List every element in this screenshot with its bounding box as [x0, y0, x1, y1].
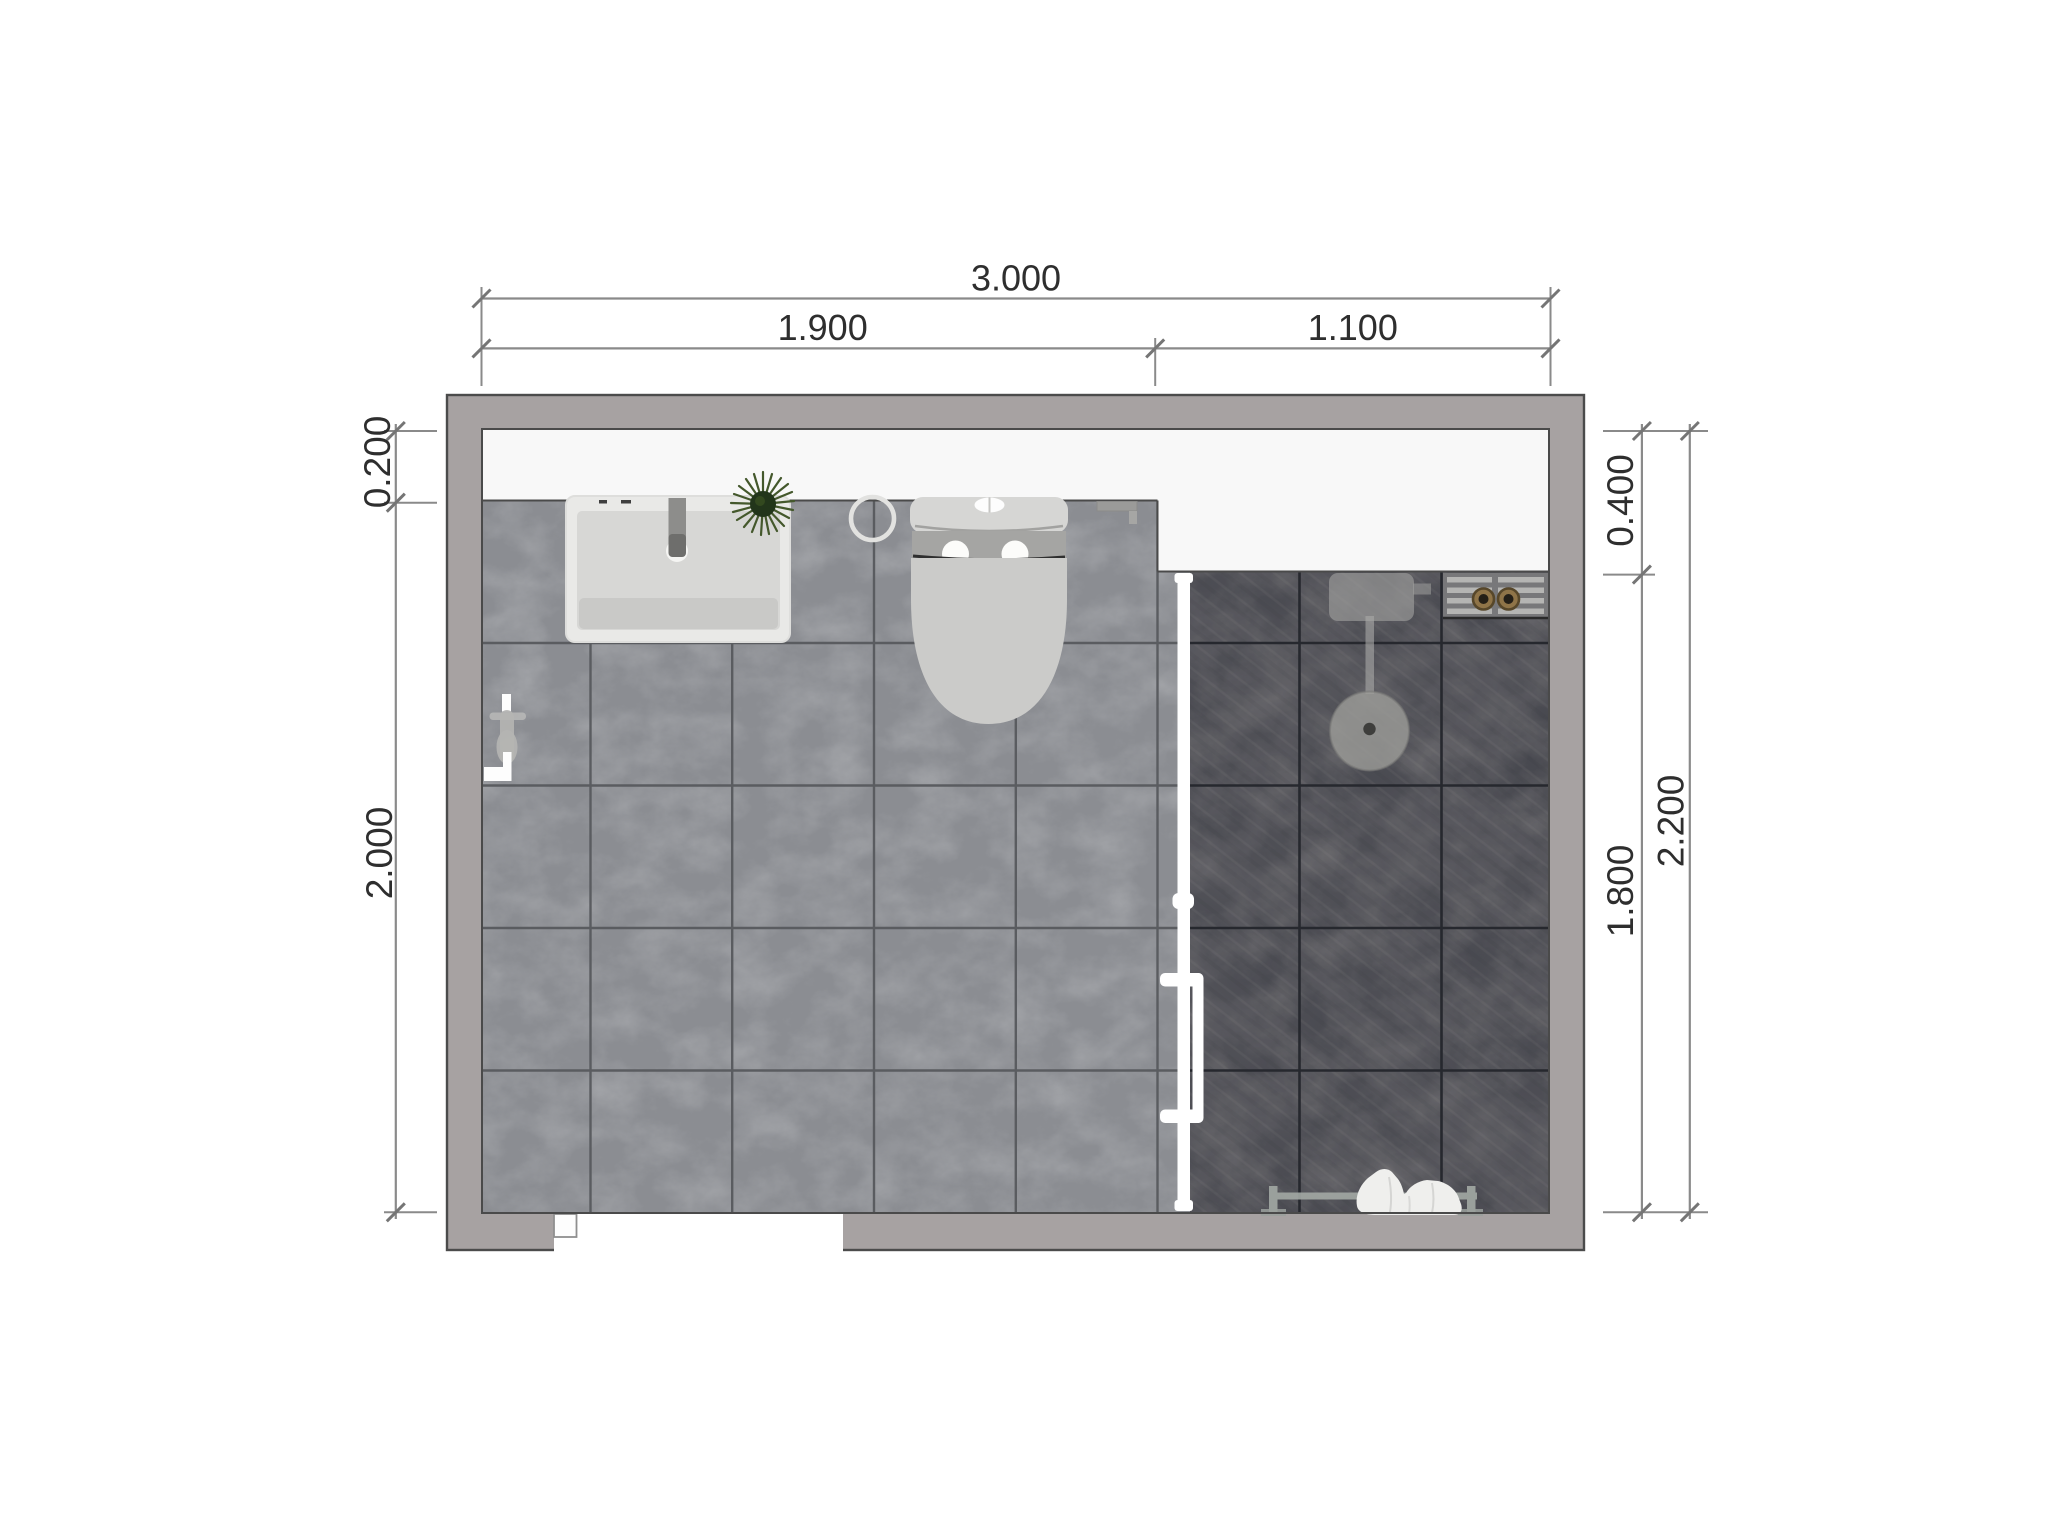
svg-text:3.000: 3.000 [971, 258, 1061, 299]
svg-text:0.200: 0.200 [357, 416, 398, 509]
svg-text:2.000: 2.000 [359, 807, 400, 900]
svg-text:1.100: 1.100 [1308, 307, 1398, 348]
svg-text:0.400: 0.400 [1600, 454, 1641, 547]
svg-text:1.800: 1.800 [1600, 845, 1641, 938]
svg-text:1.900: 1.900 [778, 307, 868, 348]
svg-text:2.200: 2.200 [1651, 775, 1692, 868]
